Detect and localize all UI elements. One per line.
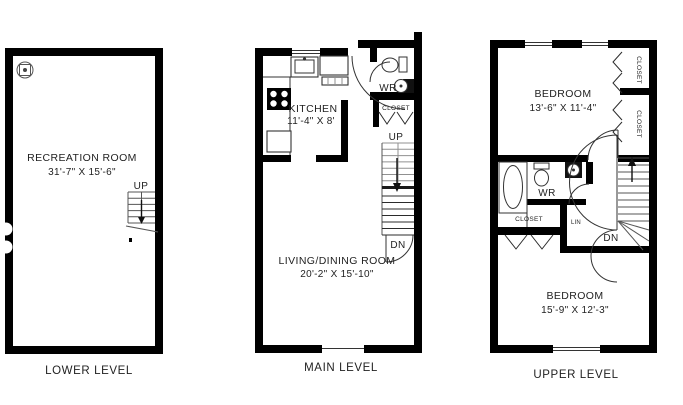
lower-stairs-up-label: UP	[134, 181, 149, 192]
floorplan-page: RECREATION ROOM 31'-7" X 15'-6" UP LOWER…	[0, 0, 683, 405]
main-stairs-up-label: UP	[389, 132, 404, 143]
closet-bifold-doors-icon	[379, 112, 413, 124]
upper-closet3-label: CLOSET	[515, 216, 543, 223]
bedroom2-dims: 15'-9" X 12'-3"	[541, 305, 609, 316]
stairs-down-icon	[382, 196, 414, 235]
bedroom2-label: BEDROOM	[546, 290, 603, 302]
kitchen-sink-icon	[291, 57, 318, 77]
upper-level-plan: BEDROOM 13'-6" X 11'-4" CLOSET CLOSET WR…	[490, 40, 657, 353]
main-closet-label: CLOSET	[382, 105, 410, 112]
upper-closet2-label: CLOSET	[635, 110, 642, 138]
kitchen-label: KITCHEN	[289, 103, 338, 115]
recreation-room-label: RECREATION ROOM	[27, 152, 137, 164]
living-dining-label: LIVING/DINING ROOM	[279, 255, 396, 267]
upper-closet1-label: CLOSET	[635, 56, 642, 84]
bedroom1-dims: 13'-6" X 11'-4"	[530, 103, 597, 114]
living-dining-dims: 20'-2" X 15'-10"	[300, 269, 374, 280]
stairs-up-icon	[382, 143, 414, 235]
wall-notch	[0, 223, 13, 236]
main-stairs-down-label: DN	[390, 240, 405, 251]
upper-level-caption: UPPER LEVEL	[533, 369, 618, 381]
lower-level-plan: RECREATION ROOM 31'-7" X 15'-6" UP	[0, 48, 163, 354]
wall	[0, 48, 163, 354]
upper-wr-label: WR	[538, 188, 555, 199]
window	[292, 51, 364, 349]
bedroom1-label: BEDROOM	[534, 88, 591, 100]
floorplan-canvas: RECREATION ROOM 31'-7" X 15'-6" UP LOWER…	[0, 0, 683, 405]
sink-icon	[565, 162, 582, 178]
main-wr-label: WR	[379, 83, 396, 94]
main-level-plan: KITCHEN 11'-4" X 8' WR CLOSET UP DN LIVI…	[255, 32, 422, 353]
toilet-icon	[382, 57, 407, 72]
lower-level-caption: LOWER LEVEL	[45, 365, 133, 377]
upper-stairs-down-label: DN	[603, 233, 618, 244]
sink-icon	[395, 79, 415, 93]
floor-drain-icon	[17, 62, 33, 78]
main-level-caption: MAIN LEVEL	[304, 362, 378, 374]
fridge-icon	[267, 131, 291, 152]
recreation-room-dims: 31'-7" X 15'-6"	[48, 167, 116, 178]
linen-closet-label: LIN	[571, 220, 581, 226]
wall-notch	[0, 241, 13, 254]
kitchen-dims: 11'-4" X 8'	[287, 116, 335, 127]
stove-icon	[267, 88, 291, 110]
